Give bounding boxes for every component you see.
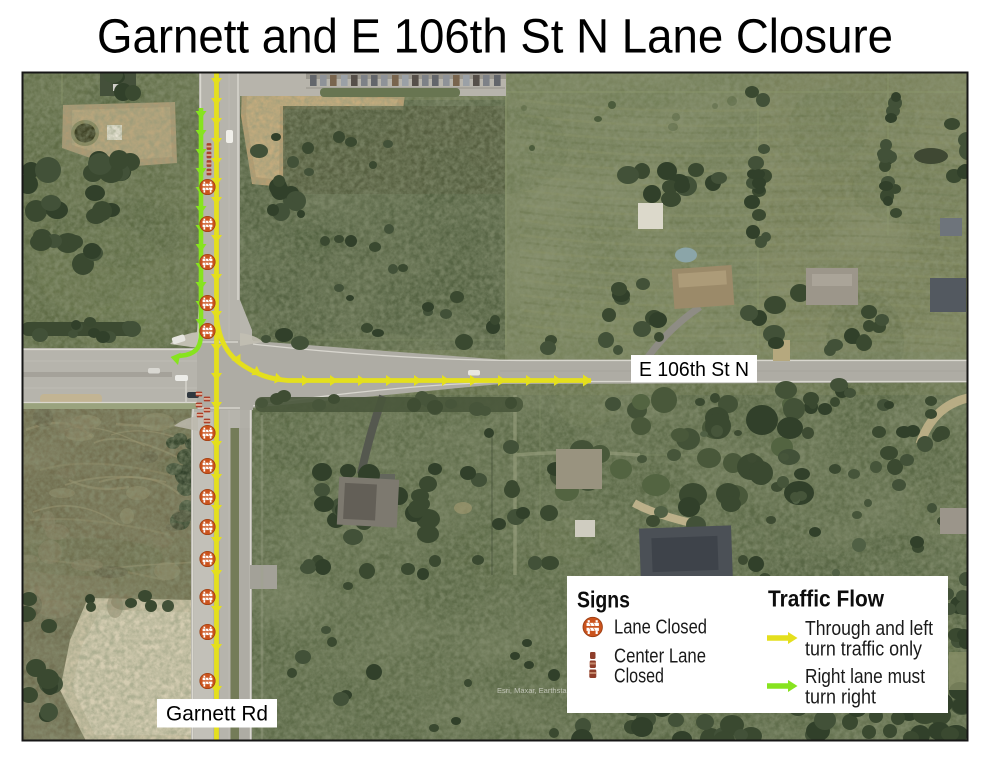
- svg-text:Garnett and E 106th St N Lane: Garnett and E 106th St N Lane Closure: [97, 10, 893, 64]
- svg-text:Right lane must: Right lane must: [805, 666, 925, 688]
- svg-text:Lane Closed: Lane Closed: [614, 617, 707, 639]
- svg-text:Traffic Flow: Traffic Flow: [768, 586, 885, 612]
- svg-text:Through and left: Through and left: [805, 618, 933, 640]
- svg-text:Garnett Rd: Garnett Rd: [166, 703, 268, 726]
- svg-text:turn traffic only: turn traffic only: [805, 639, 922, 661]
- svg-text:E 106th St N: E 106th St N: [639, 358, 749, 381]
- svg-text:Center Lane: Center Lane: [614, 646, 706, 668]
- svg-text:turn right: turn right: [805, 687, 876, 709]
- svg-text:Closed: Closed: [614, 666, 664, 688]
- svg-text:Signs: Signs: [577, 587, 630, 613]
